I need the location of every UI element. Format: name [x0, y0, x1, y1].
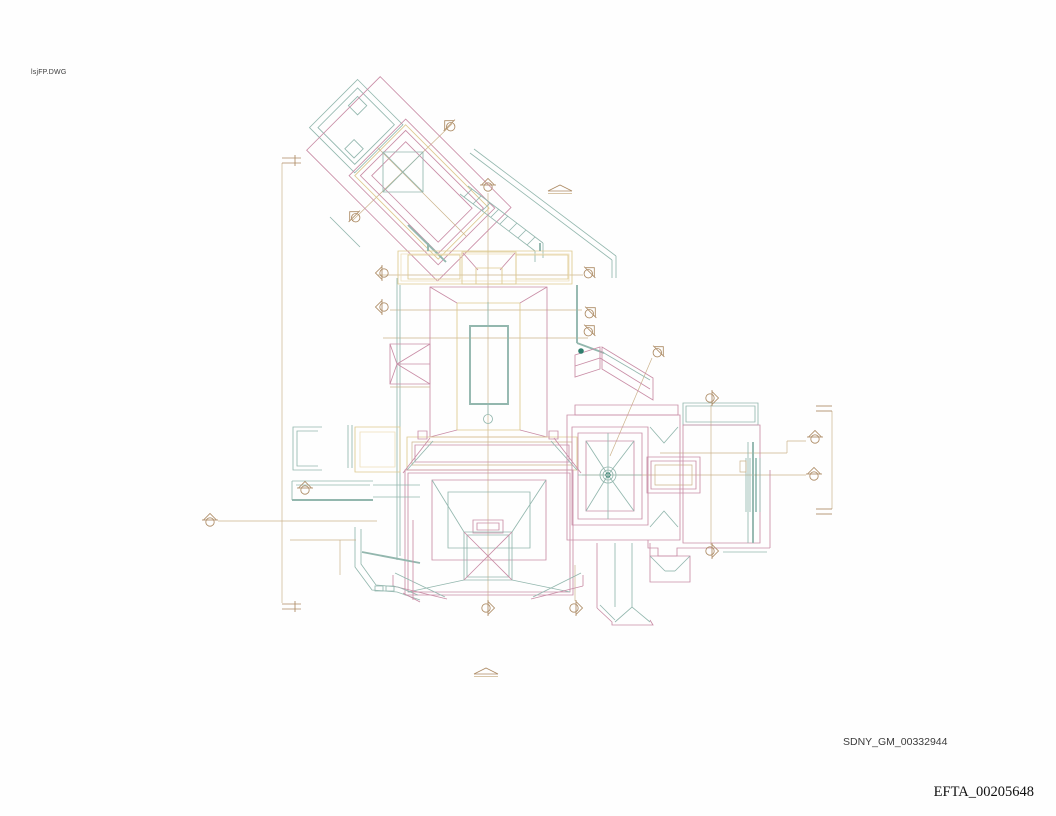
south-wing [597, 543, 690, 625]
central-block-upper [397, 278, 547, 560]
floor-plan-canvas [0, 0, 1056, 816]
diagonal-stair [330, 149, 616, 278]
document-page: lsjFP.DWG SDNY_GM_00332944 EFTA_00205648 [0, 0, 1056, 816]
bates-number-sdny: SDNY_GM_00332944 [843, 736, 947, 748]
right-block [567, 403, 770, 556]
drawing-filename-label: lsjFP.DWG [31, 69, 67, 76]
clerestory-band [398, 243, 572, 284]
left-bay [390, 344, 430, 387]
cornice-band [403, 431, 581, 473]
diagonal-wing [297, 67, 511, 281]
bates-number-efta: EFTA_00205648 [934, 784, 1034, 801]
dimension-lines [218, 124, 832, 612]
wing-crossing-square [383, 152, 423, 192]
